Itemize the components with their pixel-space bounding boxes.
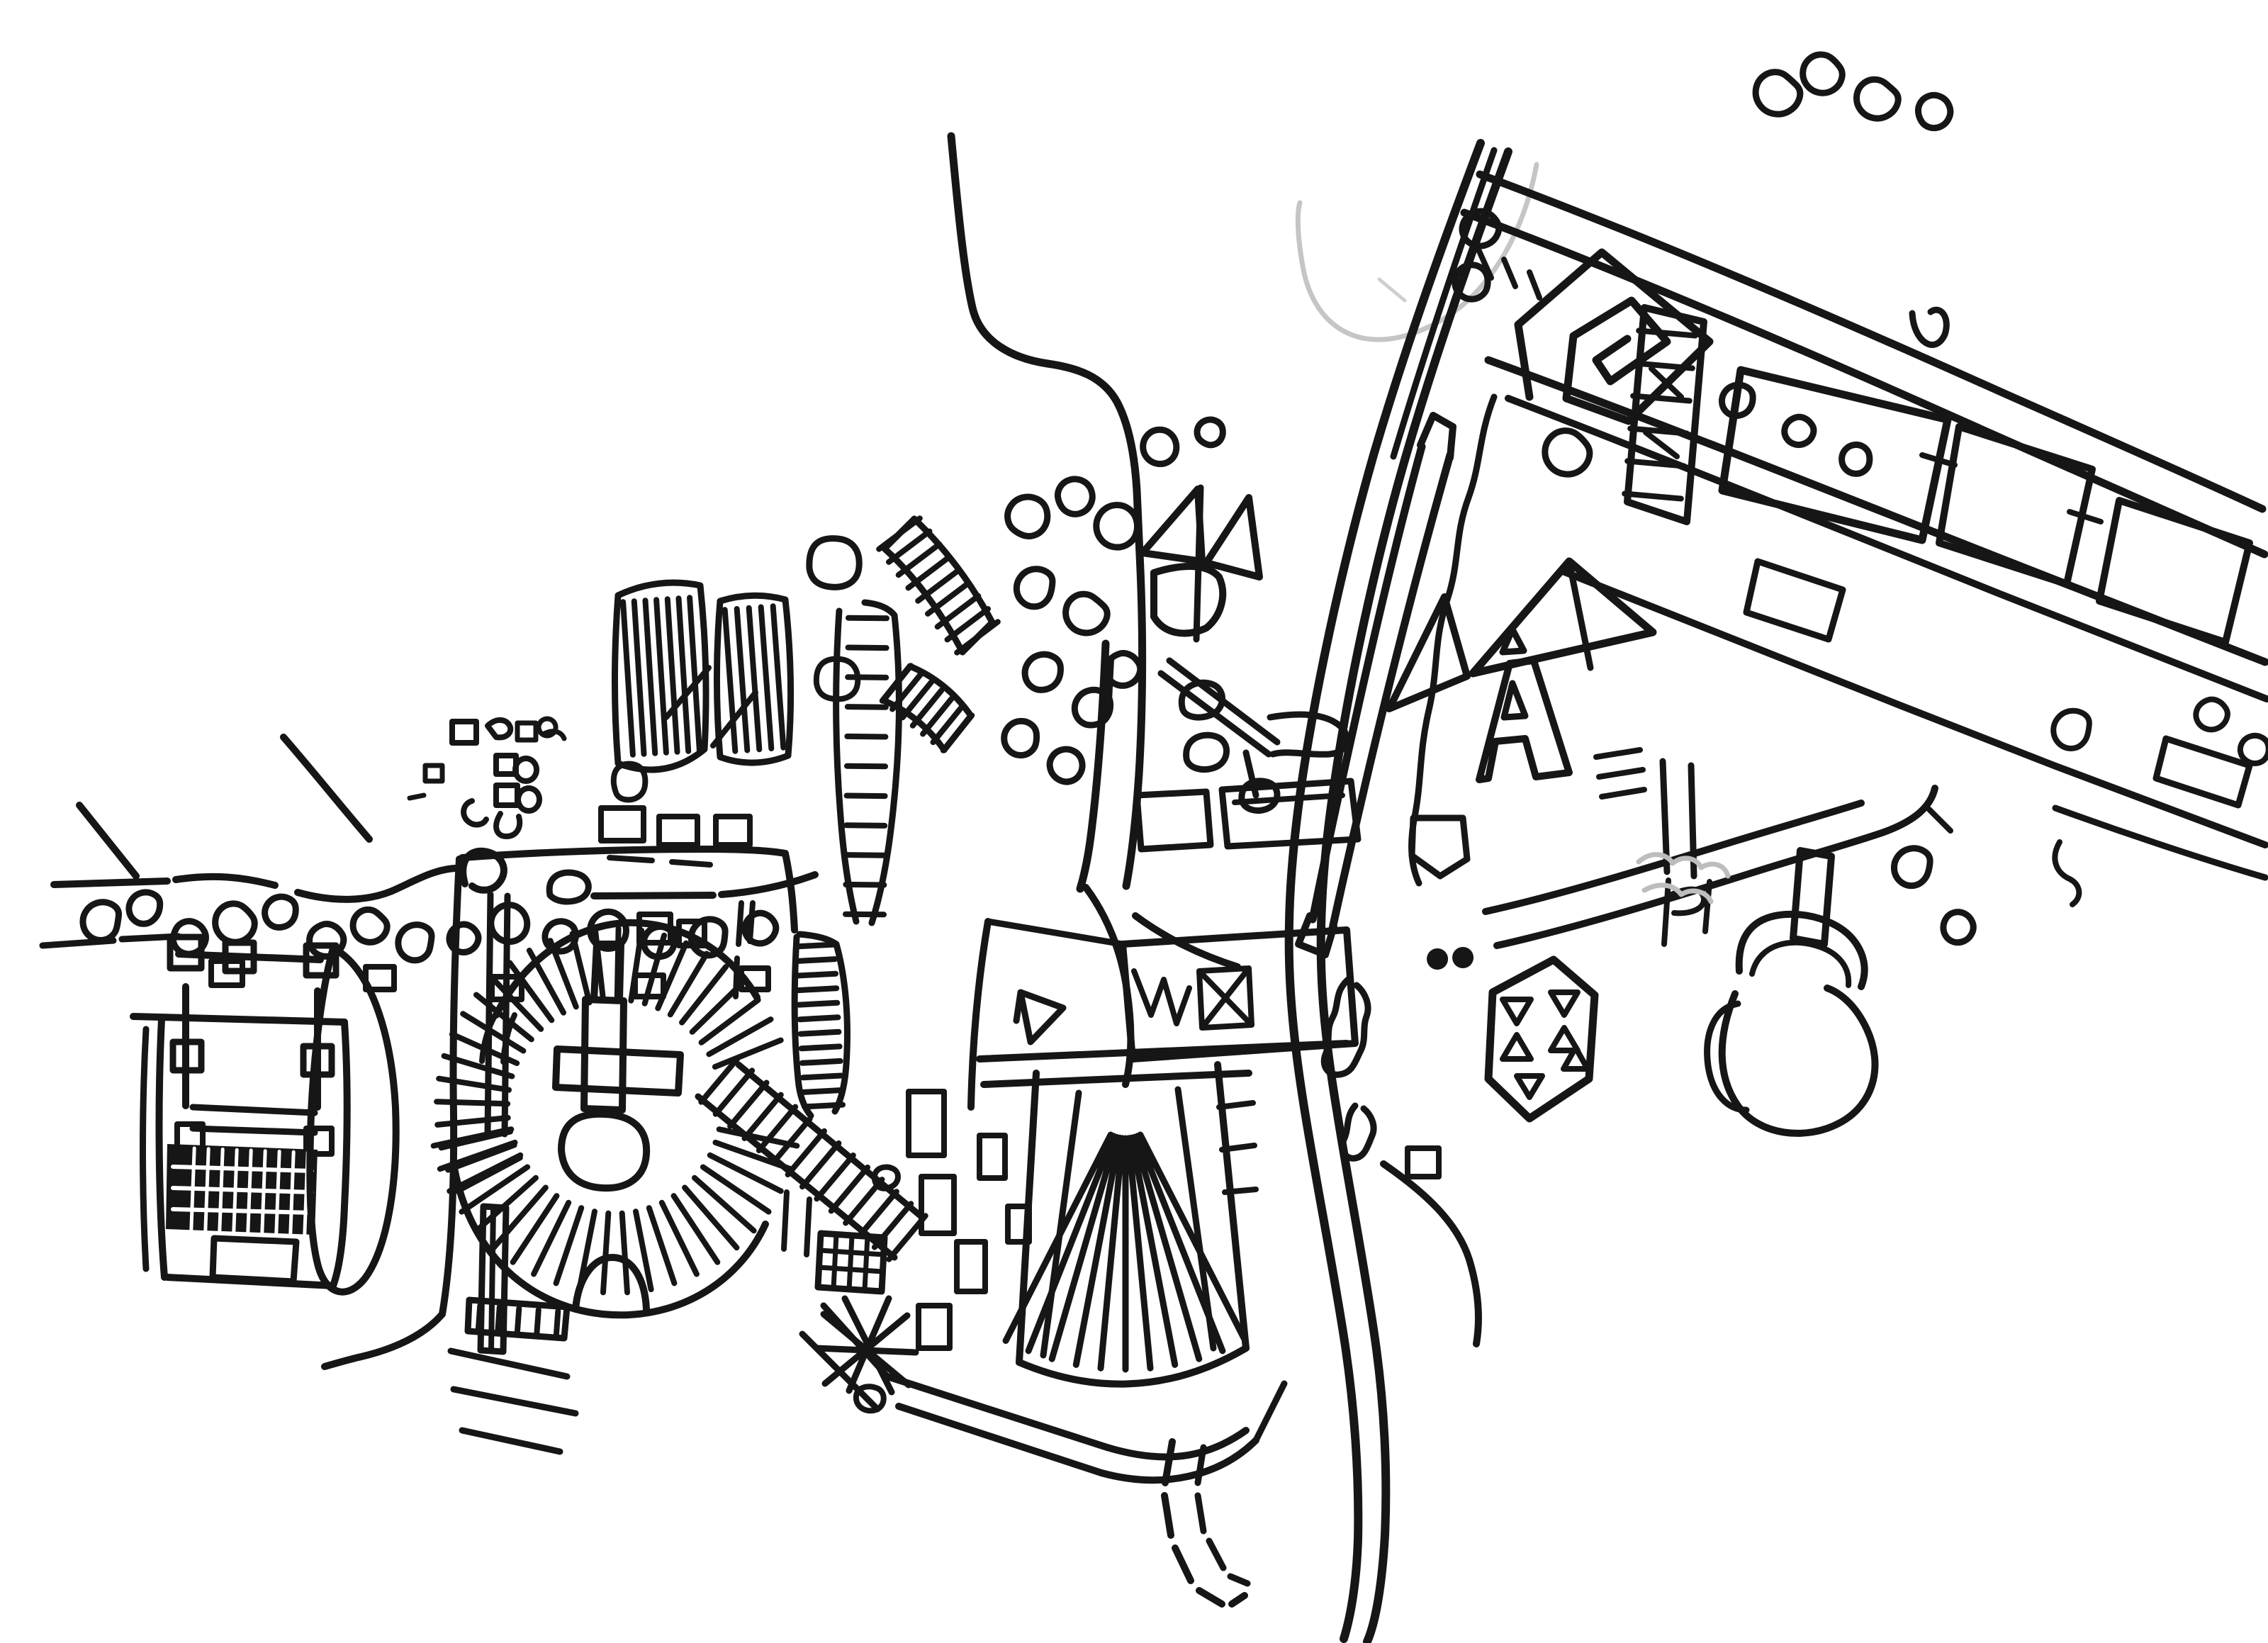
center-village (1004, 420, 1358, 1084)
grand-highway (1164, 143, 1935, 1642)
tiny-blocks (410, 719, 564, 836)
sketch-map-canvas (0, 0, 2268, 1643)
midtown-blocks (601, 518, 998, 1411)
west-depot (133, 937, 396, 1292)
sketch-page (0, 0, 2268, 1643)
west-avenue (43, 737, 815, 999)
northeast-corridor (1455, 55, 2268, 904)
east-landmarks (1389, 561, 1973, 1177)
